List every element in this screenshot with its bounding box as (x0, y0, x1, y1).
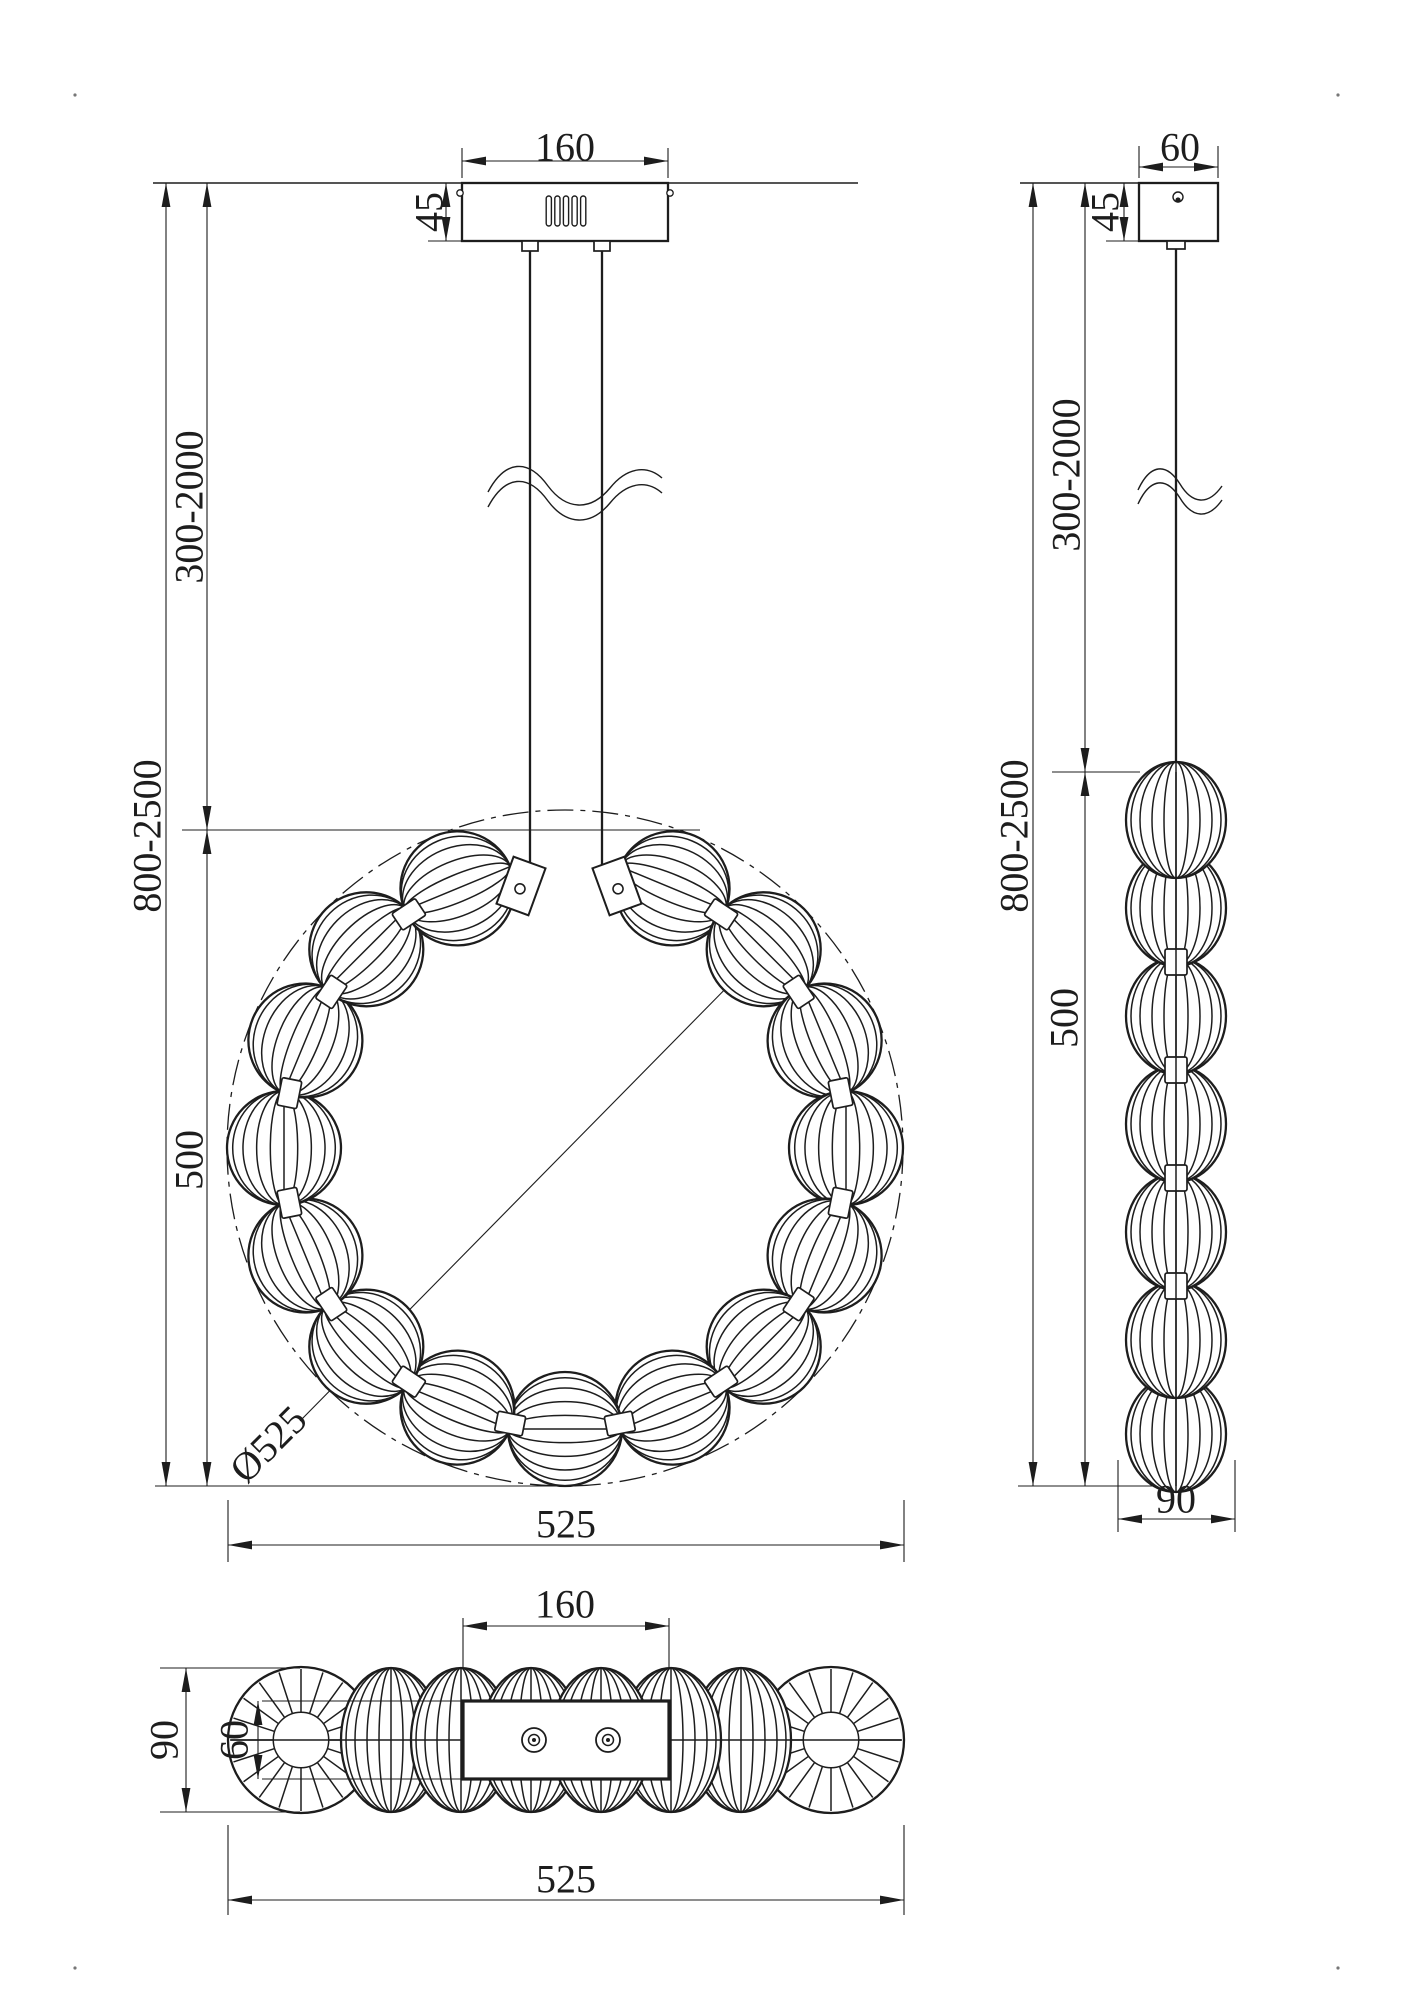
top-canopy-width-label: 160 (535, 1582, 595, 1627)
drawing-sheet: 160 45 300-2000 800-2500 500 Ø525 525 60… (0, 0, 1413, 2000)
mounting-plate (463, 1701, 669, 1779)
bead-connector (277, 1187, 302, 1218)
bead-connector (828, 1187, 853, 1218)
side-body-height-label: 500 (1042, 988, 1087, 1048)
page-dot (73, 93, 76, 96)
side-canopy-width-label: 60 (1160, 125, 1200, 170)
front-overall-range-label: 800-2500 (125, 759, 170, 912)
top-overall-width-label: 525 (536, 1857, 596, 1902)
front-canopy-height-label: 45 (407, 192, 452, 232)
front-diameter-label: Ø525 (221, 1397, 316, 1492)
glass-bead (227, 1091, 341, 1205)
front-view (153, 148, 904, 1562)
front-body-height-label: 500 (167, 1130, 212, 1190)
top-plate-depth-label: 60 (212, 1720, 257, 1760)
bead-connector (828, 1077, 853, 1108)
side-body-width-label: 90 (1156, 1477, 1196, 1522)
top-view (160, 1618, 904, 1915)
bead-connector (494, 1411, 525, 1436)
side-view (1018, 146, 1235, 1532)
page-dot (73, 1966, 76, 1969)
glass-bead (508, 1372, 622, 1486)
side-canopy-height-label: 45 (1083, 192, 1128, 232)
page-dot (1336, 93, 1339, 96)
front-suspension-range-label: 300-2000 (167, 430, 212, 583)
page-dot (1336, 1966, 1339, 1969)
side-suspension-range-label: 300-2000 (1044, 398, 1089, 551)
bead-connector (277, 1077, 302, 1108)
front-overall-width-label: 525 (536, 1502, 596, 1547)
side-overall-range-label: 800-2500 (992, 759, 1037, 912)
bead-connector (604, 1411, 635, 1436)
top-body-depth-label: 90 (142, 1720, 187, 1760)
front-canopy-width-label: 160 (535, 125, 595, 170)
glass-bead (789, 1091, 903, 1205)
technical-drawing: 160 45 300-2000 800-2500 500 Ø525 525 60… (0, 0, 1413, 2000)
